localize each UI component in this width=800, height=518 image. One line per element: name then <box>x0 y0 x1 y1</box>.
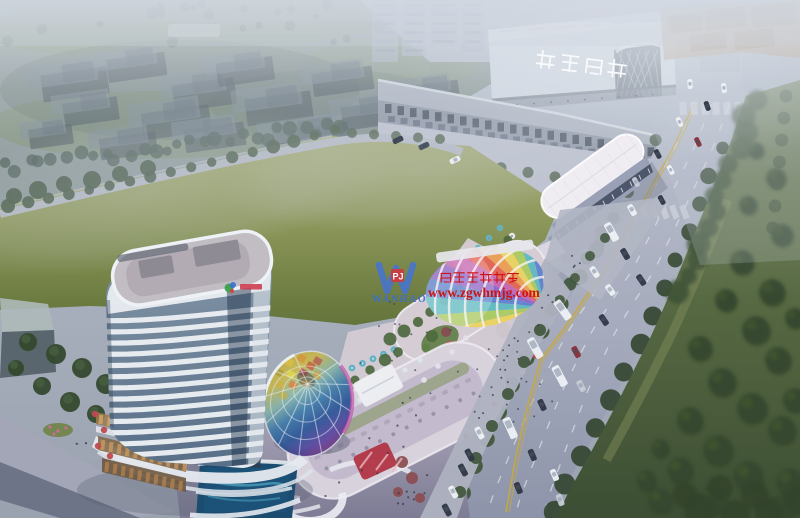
svg-text:PJ: PJ <box>393 272 404 282</box>
svg-text:www.zgwhmjg.com: www.zgwhmjg.com <box>428 285 540 300</box>
svg-text:WANHAO: WANHAO <box>372 294 427 305</box>
